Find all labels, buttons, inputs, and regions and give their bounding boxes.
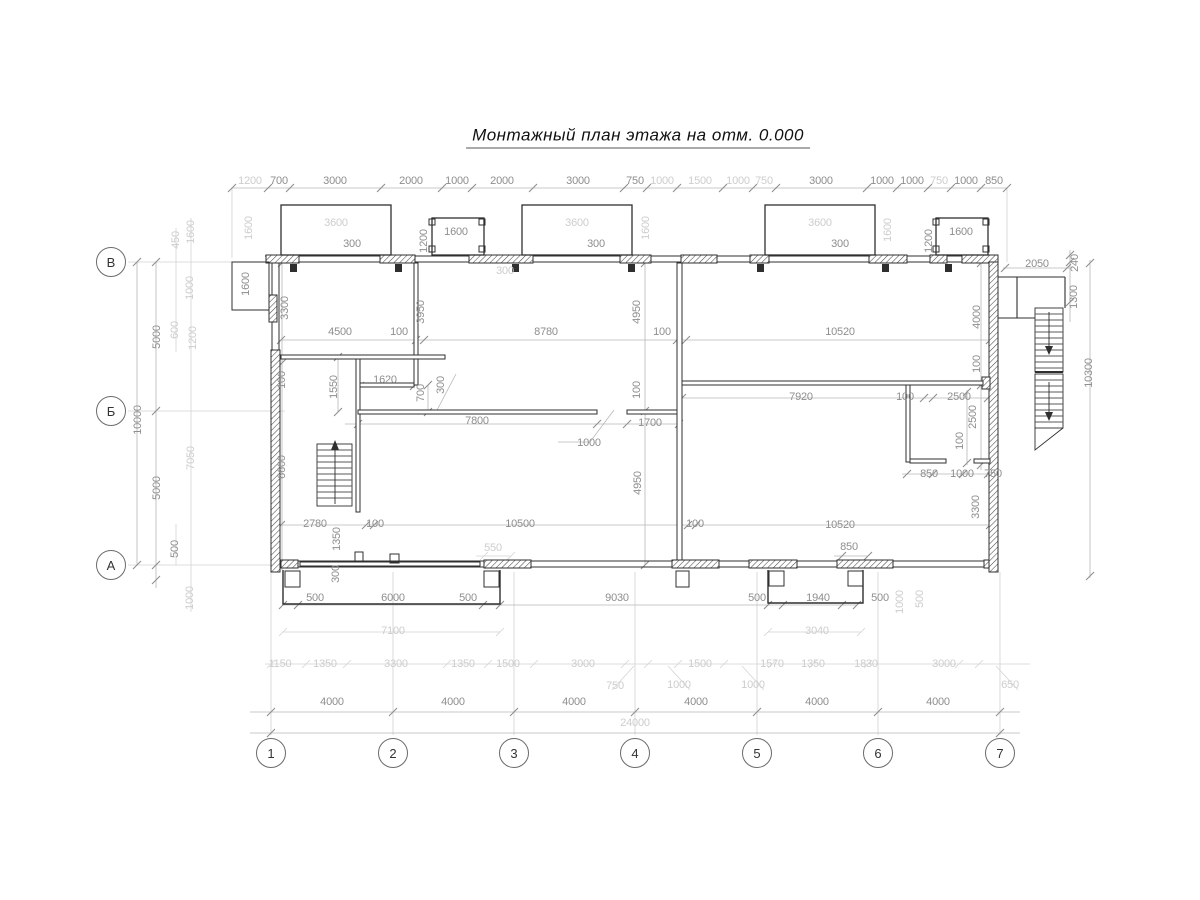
dimension-label: 3300 [384, 658, 408, 670]
dimension-label: 24000 [620, 717, 650, 729]
dimension-label: 450 [170, 231, 182, 249]
dimension-label: 10520 [825, 326, 855, 338]
vitrine [300, 552, 480, 566]
dimension-label: 300 [343, 238, 361, 250]
dimension-label: 4000 [684, 696, 708, 708]
dimension-label: 1830 [854, 658, 878, 670]
axis-bubble-А: А [96, 550, 126, 580]
dimension-label: 1600 [185, 220, 197, 244]
dimension-label: 3950 [415, 300, 427, 324]
dimension-label: 7920 [789, 391, 813, 403]
dimension-label: 8780 [534, 326, 558, 338]
dimension-label: 1350 [801, 658, 825, 670]
dimension-label: 1350 [313, 658, 337, 670]
dimension-label: 10520 [825, 519, 855, 531]
dimension-label: 1200 [238, 175, 262, 187]
axis-lines [128, 188, 1007, 735]
dimension-label: 7800 [465, 415, 489, 427]
dimension-label: 750 [930, 175, 948, 187]
dimension-label: 3300 [279, 296, 291, 320]
dimension-label: 500 [871, 592, 889, 604]
dimension-label: 300 [587, 238, 605, 250]
dimension-label: 3000 [323, 175, 347, 187]
dimension-label: 3000 [571, 658, 595, 670]
dimension-label: 750 [984, 468, 1002, 480]
dimension-label: 1200 [187, 326, 199, 350]
dimension-label: 100 [971, 355, 983, 373]
dimension-label: 650 [1001, 679, 1019, 691]
dimension-label: 3300 [970, 495, 982, 519]
dimension-label: 1600 [243, 216, 255, 240]
dimension-label: 1550 [328, 375, 340, 399]
dimension-label: 750 [626, 175, 644, 187]
dimension-label: 1600 [640, 216, 652, 240]
dimension-label: 500 [459, 592, 477, 604]
dimension-label: 1500 [496, 658, 520, 670]
dimension-label: 4500 [328, 326, 352, 338]
axis-bubble-Б: Б [96, 396, 126, 426]
dimension-label: 1000 [900, 175, 924, 187]
dimension-label: 100 [896, 391, 914, 403]
dimension-label: 1500 [688, 658, 712, 670]
dimension-label: 10500 [505, 518, 535, 530]
dimension-label: 2500 [967, 405, 979, 429]
dimension-label: 4000 [926, 696, 950, 708]
dimension-label: 5000 [151, 476, 163, 500]
dimension-label: 1570 [760, 658, 784, 670]
dimension-label: 2000 [490, 175, 514, 187]
dimension-label: 1000 [741, 679, 765, 691]
axis-bubble-6: 6 [863, 738, 893, 768]
dimension-label: 4000 [441, 696, 465, 708]
axis-bubble-5: 5 [742, 738, 772, 768]
axis-bubble-3: 3 [499, 738, 529, 768]
dimension-label: 1600 [444, 226, 468, 238]
dimension-label: 1000 [950, 468, 974, 480]
dimension-label: 4000 [562, 696, 586, 708]
dimension-label: 100 [366, 518, 384, 530]
axis-bubble-2: 2 [378, 738, 408, 768]
dimension-label: 3600 [808, 217, 832, 229]
dimension-lines-light [176, 218, 1030, 690]
axis-bubble-4: 4 [620, 738, 650, 768]
dimension-label: 100 [631, 381, 643, 399]
dimension-label: 1620 [373, 374, 397, 386]
dimension-label: 100 [653, 326, 671, 338]
axis-bubble-1: 1 [256, 738, 286, 768]
dimension-label: 4950 [631, 300, 643, 324]
dimension-label: 1000 [894, 590, 906, 614]
dimension-label: 1600 [882, 218, 894, 242]
dimension-label: 3600 [324, 217, 348, 229]
dimension-label: 850 [840, 541, 858, 553]
dimension-label: 3000 [566, 175, 590, 187]
dimension-label: 1150 [269, 658, 292, 670]
dimension-label: 500 [306, 592, 324, 604]
dimension-label: 1600 [949, 226, 973, 238]
dimension-label: 2050 [1025, 258, 1049, 270]
dimension-label: 1350 [451, 658, 475, 670]
dimension-label: 5000 [151, 325, 163, 349]
dimension-label: 850 [920, 468, 938, 480]
drawing-canvas: Монтажный план этажа на отм. 0.000 12007… [0, 0, 1200, 900]
dimension-label: 1000 [954, 175, 978, 187]
dimension-label: 1700 [638, 417, 662, 429]
dimension-label: 300 [496, 265, 514, 277]
dimension-label: 750 [755, 175, 773, 187]
dimension-label: 100 [954, 432, 966, 450]
dimension-label: 10000 [132, 405, 144, 435]
dimension-label: 6000 [381, 592, 405, 604]
drawing-title: Монтажный план этажа на отм. 0.000 [466, 126, 810, 149]
stair-left [317, 440, 352, 506]
axis-bubble-7: 7 [985, 738, 1015, 768]
dimension-label: 1940 [806, 592, 830, 604]
dimension-label: 4000 [320, 696, 344, 708]
stair-right [998, 277, 1065, 450]
dimension-label: 1200 [923, 229, 935, 253]
dimension-label: 3000 [932, 658, 956, 670]
dimension-label: 1000 [184, 586, 196, 610]
dimension-label: 1000 [667, 679, 691, 691]
dimension-label: 100 [276, 371, 288, 389]
axis-bubble-В: В [96, 247, 126, 277]
dimension-label: 4000 [805, 696, 829, 708]
dimension-label: 1300 [1068, 285, 1080, 309]
dimension-label: 1350 [331, 527, 343, 551]
dimension-label: 600 [169, 321, 181, 339]
wall-posts [290, 264, 952, 272]
dimension-label: 500 [914, 590, 926, 608]
dimension-label: 1000 [650, 175, 674, 187]
dimension-label: 700 [415, 384, 427, 402]
dimension-label: 6600 [276, 455, 288, 479]
dimension-label: 2500 [947, 391, 971, 403]
dimension-label: 10300 [1083, 358, 1095, 388]
dimension-label: 4950 [632, 471, 644, 495]
dimension-label: 1600 [240, 272, 252, 296]
dimension-label: 300 [435, 376, 447, 394]
dimension-label: 300 [831, 238, 849, 250]
dimension-label: 2780 [303, 518, 327, 530]
dimension-label: 3000 [809, 175, 833, 187]
dimension-label: 500 [169, 540, 181, 558]
dimension-label: 700 [270, 175, 288, 187]
dimension-label: 100 [390, 326, 408, 338]
dimension-label: 1500 [688, 175, 712, 187]
dimension-label: 300 [330, 565, 342, 583]
dimension-label: 850 [985, 175, 1003, 187]
dimension-label: 7050 [185, 446, 197, 470]
dimension-label: 750 [606, 680, 624, 692]
dimension-label: 3040 [805, 625, 829, 637]
dimension-label: 1000 [726, 175, 750, 187]
dimension-label: 1000 [577, 437, 601, 449]
porch-posts [429, 219, 989, 252]
dimension-label: 7100 [381, 625, 405, 637]
dimension-label: 550 [484, 542, 502, 554]
dimension-label: 1000 [445, 175, 469, 187]
dimension-label: 9030 [605, 592, 629, 604]
dimension-label: 2000 [399, 175, 423, 187]
dimension-label: 240 [1069, 254, 1081, 272]
dimension-label: 4000 [971, 305, 983, 329]
dimension-label: 500 [748, 592, 766, 604]
dimension-label: 1200 [418, 229, 430, 253]
dimension-label: 1000 [870, 175, 894, 187]
dimension-label: 1000 [184, 276, 196, 300]
dimension-label: 3600 [565, 217, 589, 229]
dimension-label: 100 [686, 518, 704, 530]
